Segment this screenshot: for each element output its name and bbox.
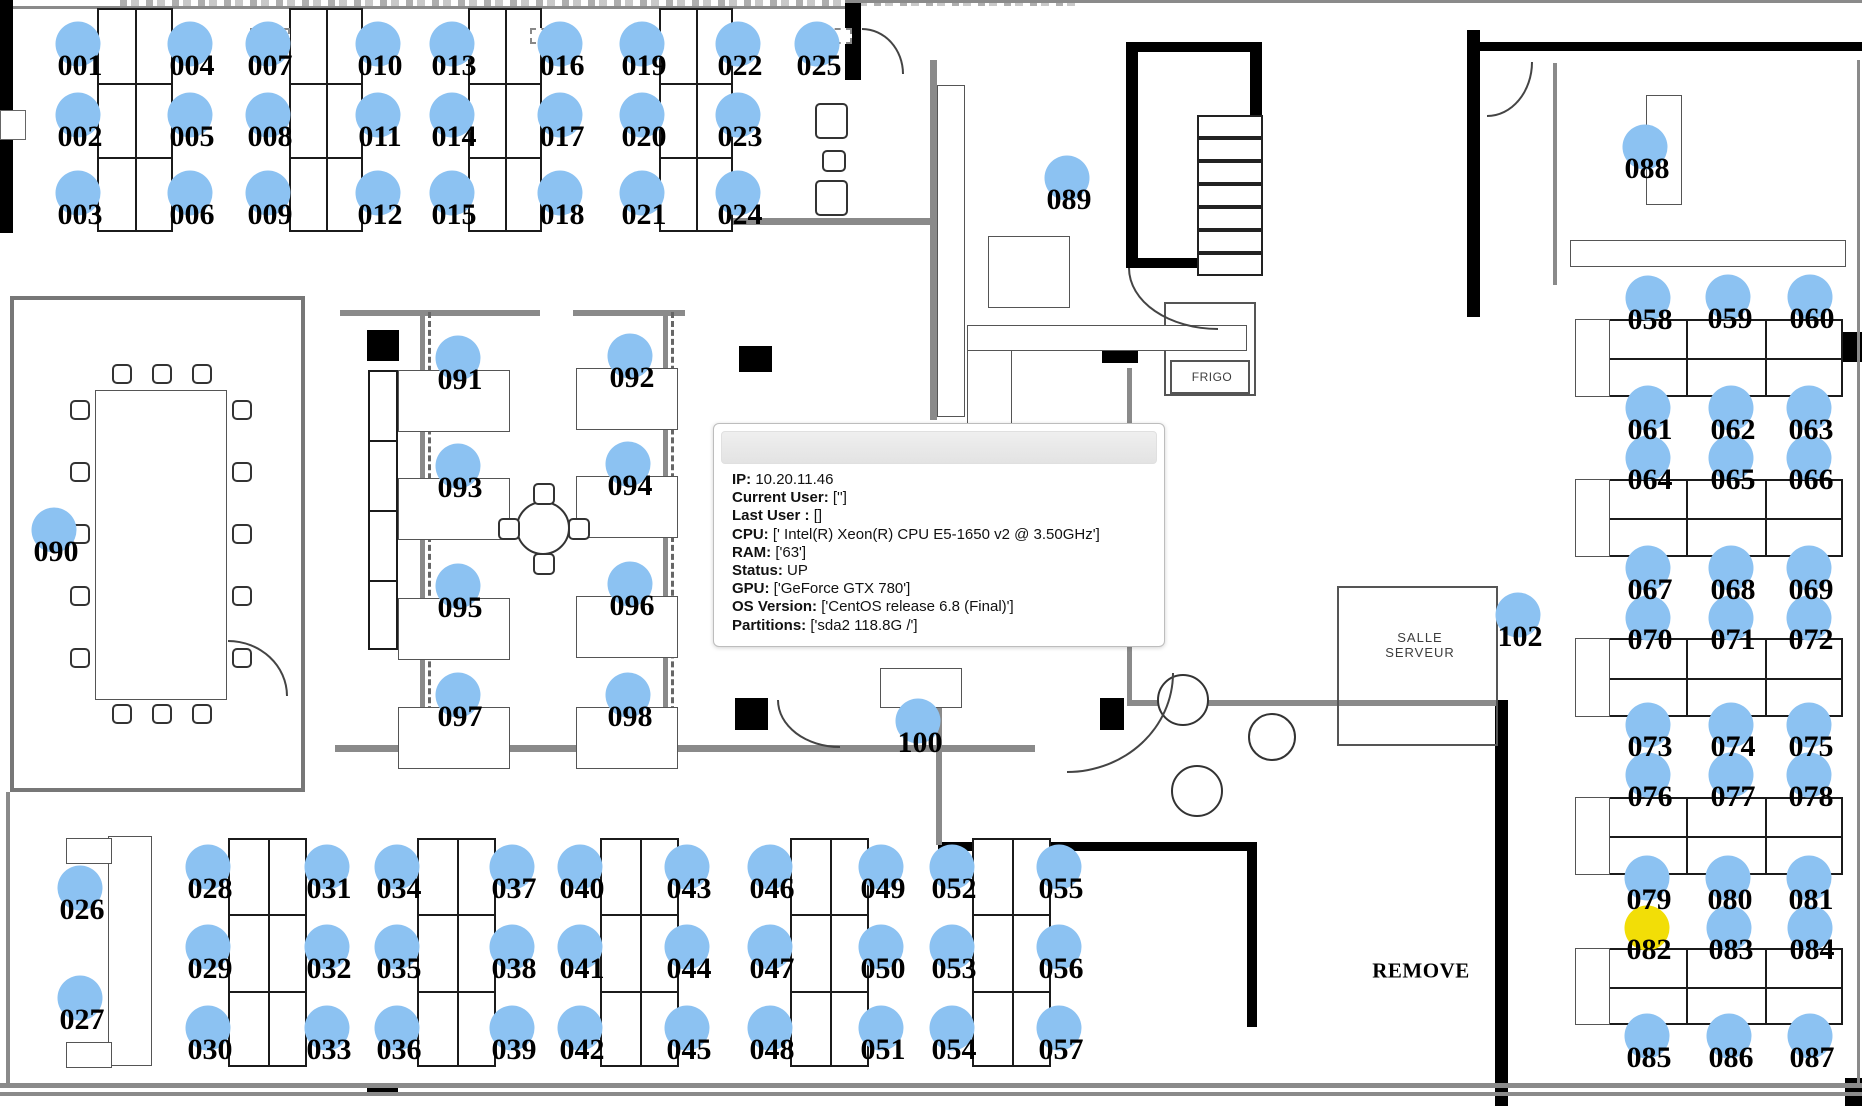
tooltip-field-value: [''] [833, 489, 847, 506]
seat-number: 080 [1708, 883, 1753, 917]
seat-number: 025 [797, 49, 842, 83]
wall [1553, 63, 1557, 285]
tooltip-field-value: ['CentOS release 6.8 (Final)'] [821, 598, 1013, 615]
shelf-row [1197, 253, 1263, 276]
seat-number: 066 [1789, 463, 1834, 497]
shelf-row [1197, 230, 1263, 253]
desk-divider [659, 157, 733, 159]
desk-divider [368, 510, 398, 512]
seat-number: 011 [358, 120, 401, 154]
seat-number: 098 [608, 700, 653, 734]
desk-divider [368, 440, 398, 442]
seat-number: 031 [307, 872, 352, 906]
shelf-row [1197, 161, 1263, 184]
seat-number: 019 [622, 49, 667, 83]
wall [845, 0, 1862, 3]
desk-divider [972, 914, 1051, 916]
seat-number: 015 [432, 198, 477, 232]
desk-divider [640, 838, 642, 1067]
seat-number: 097 [438, 700, 483, 734]
door-arc [1067, 673, 1174, 773]
desk-divider [600, 914, 679, 916]
chair [192, 704, 212, 724]
desk-divider [1608, 518, 1843, 520]
seat-number: 047 [750, 952, 795, 986]
seat-number: 070 [1628, 623, 1673, 657]
round-table [516, 501, 570, 555]
door-arc [862, 28, 904, 74]
desk [66, 838, 112, 864]
seat-number: 009 [248, 198, 293, 232]
remove-label: REMOVE [1372, 959, 1470, 984]
tooltip-field-partitions-: Partitions: ['sda2 118.8G /'] [732, 617, 1154, 635]
seat-number: 029 [188, 952, 233, 986]
seat-number: 063 [1789, 413, 1834, 447]
wall [6, 792, 10, 1083]
seat-number: 041 [560, 952, 605, 986]
seat-number: 050 [861, 952, 906, 986]
seat-number: 081 [1789, 883, 1834, 917]
desk-divider [268, 838, 270, 1067]
seat-number: 012 [358, 198, 403, 232]
seat-number: 027 [60, 1003, 105, 1037]
seat-number: 042 [560, 1033, 605, 1067]
desk [1570, 240, 1846, 267]
desk-divider [505, 8, 507, 232]
tooltip-field-os-version-: OS Version: ['CentOS release 6.8 (Final)… [732, 598, 1154, 616]
wall [1247, 842, 1257, 1027]
desk-divider [468, 83, 542, 85]
desk-divider [790, 914, 869, 916]
desk [66, 1042, 112, 1068]
wall [0, 1092, 1862, 1096]
seat-number: 052 [932, 872, 977, 906]
tooltip-field-label: OS Version: [732, 598, 817, 615]
desk-divider [1012, 838, 1014, 1067]
desk-divider [228, 991, 307, 993]
seat-number: 071 [1711, 623, 1756, 657]
desk [937, 85, 965, 417]
tooltip-titlebar [721, 431, 1157, 464]
seat-number: 010 [358, 49, 403, 83]
seat-number: 020 [622, 120, 667, 154]
wall [739, 346, 772, 372]
seat-number: 034 [377, 872, 422, 906]
tooltip-field-value: ['sda2 118.8G /'] [810, 617, 917, 634]
desk-divider [830, 838, 832, 1067]
seat-number: 072 [1789, 623, 1834, 657]
tooltip-field-label: GPU: [732, 580, 770, 597]
seat-number: 055 [1039, 872, 1084, 906]
seat-number: 089 [1047, 183, 1092, 217]
desk-divider [289, 83, 363, 85]
chair [232, 462, 252, 482]
shelf-row [1197, 184, 1263, 207]
chair [232, 586, 252, 606]
tooltip-field-label: CPU: [732, 526, 769, 543]
seat-number: 057 [1039, 1033, 1084, 1067]
chair [533, 553, 555, 575]
seat-number: 003 [58, 198, 103, 232]
desk [1575, 319, 1610, 397]
desk-divider [659, 83, 733, 85]
wall [1467, 30, 1480, 317]
chair [822, 150, 846, 172]
desk-divider [1608, 678, 1843, 680]
desk [1575, 797, 1610, 875]
wall [930, 60, 937, 420]
chair [70, 586, 90, 606]
seat-number: 067 [1628, 573, 1673, 607]
seat-number: 008 [248, 120, 293, 154]
seat-number: 039 [492, 1033, 537, 1067]
seat-number: 094 [608, 469, 653, 503]
tooltip-field-current-user-: Current User: [''] [732, 489, 1154, 507]
tooltip-field-ram-: RAM: ['63'] [732, 544, 1154, 562]
desk-divider [368, 580, 398, 582]
seat-number: 062 [1711, 413, 1756, 447]
seat-number: 083 [1709, 933, 1754, 967]
desk [95, 390, 227, 700]
desk-divider [457, 838, 459, 1067]
tooltip-field-label: Last User : [732, 507, 810, 524]
tooltip-field-status-: Status: UP [732, 562, 1154, 580]
tooltip-field-cpu-: CPU: [' Intel(R) Xeon(R) CPU E5-1650 v2 … [732, 526, 1154, 544]
seat-number: 100 [898, 726, 943, 760]
chair [112, 364, 132, 384]
desk-divider [326, 8, 328, 232]
seat-number: 002 [58, 120, 103, 154]
seat-number: 077 [1711, 780, 1756, 814]
chair [112, 704, 132, 724]
seat-number: 043 [667, 872, 712, 906]
chair [192, 364, 212, 384]
desk-divider [1608, 836, 1843, 838]
seat-number: 065 [1711, 463, 1756, 497]
seat-number: 005 [170, 120, 215, 154]
tooltip-field-value: [] [814, 507, 822, 524]
desk-divider [97, 157, 173, 159]
chair [70, 400, 90, 420]
desk-divider [600, 991, 679, 993]
seat-number: 024 [718, 198, 763, 232]
desk-divider [1608, 358, 1843, 360]
chair [152, 704, 172, 724]
seat-number: 064 [1628, 463, 1673, 497]
desk-divider [97, 83, 173, 85]
chair [70, 462, 90, 482]
shelf-row [1197, 115, 1263, 138]
seat-number: 051 [861, 1033, 906, 1067]
round-table [1171, 765, 1223, 817]
seat-number: 018 [540, 198, 585, 232]
chair [152, 364, 172, 384]
wall [1857, 60, 1860, 1085]
chair [815, 180, 848, 216]
desk-divider [135, 8, 137, 232]
seat-number: 048 [750, 1033, 795, 1067]
seat-number: 087 [1790, 1041, 1835, 1075]
wall [0, 138, 13, 233]
tooltip-field-label: Status: [732, 562, 783, 579]
desk-divider [1608, 987, 1843, 989]
tooltip-field-ip-: IP: 10.20.11.46 [732, 471, 1154, 489]
seat-number: 069 [1789, 573, 1834, 607]
shelf-row [1197, 138, 1263, 161]
chair [815, 103, 848, 139]
door-arc [777, 700, 840, 748]
desk [108, 836, 152, 1066]
desk-divider [417, 914, 496, 916]
wall [1126, 42, 1262, 52]
seat-number: 090 [34, 535, 79, 569]
seat-number: 073 [1628, 730, 1673, 764]
seat-number: 076 [1628, 780, 1673, 814]
desk-divider [696, 8, 698, 232]
seat-number: 032 [307, 952, 352, 986]
server-room [1337, 586, 1498, 746]
floorplan-canvas: 0010020030040050060070080090100110120130… [0, 0, 1862, 1106]
tooltip-field-value: ['63'] [775, 544, 806, 561]
seat-number: 049 [861, 872, 906, 906]
wall [0, 0, 13, 110]
seat-number: 038 [492, 952, 537, 986]
wall [0, 1083, 1862, 1088]
chair [70, 648, 90, 668]
chair [533, 483, 555, 505]
desk-divider [468, 157, 542, 159]
seat-number: 007 [248, 49, 293, 83]
wall [573, 310, 685, 316]
seat-number: 088 [1625, 152, 1670, 186]
seat-number: 045 [667, 1033, 712, 1067]
desk-divider [289, 157, 363, 159]
seat-number: 033 [307, 1033, 352, 1067]
seat-number: 054 [932, 1033, 977, 1067]
seat-number: 092 [610, 361, 655, 395]
chair [232, 400, 252, 420]
seat-number: 082 [1627, 933, 1672, 967]
wall [1480, 42, 1862, 51]
seat-number: 096 [610, 589, 655, 623]
wall [1495, 700, 1508, 1106]
tooltip-field-label: RAM: [732, 544, 771, 561]
seat-number: 086 [1709, 1041, 1754, 1075]
seat-number: 085 [1627, 1041, 1672, 1075]
seat-number: 079 [1627, 883, 1672, 917]
seat-number: 102 [1498, 620, 1543, 654]
seat-number: 084 [1790, 933, 1835, 967]
seat-number: 006 [170, 198, 215, 232]
tooltip-field-label: Current User: [732, 489, 829, 506]
seat-number: 053 [932, 952, 977, 986]
seat-number: 075 [1789, 730, 1834, 764]
seat-number: 078 [1789, 780, 1834, 814]
seat-number: 074 [1711, 730, 1756, 764]
seat-number: 013 [432, 49, 477, 83]
frigo-label: FRIGO [1192, 370, 1233, 384]
seat-number: 028 [188, 872, 233, 906]
seat-number: 040 [560, 872, 605, 906]
seat-number: 060 [1790, 302, 1835, 336]
seat-number: 016 [540, 49, 585, 83]
desk [1575, 948, 1610, 1025]
seat-number: 037 [492, 872, 537, 906]
seat-number: 001 [58, 49, 103, 83]
seat-number: 091 [438, 363, 483, 397]
seat-number: 036 [377, 1033, 422, 1067]
machine-info-tooltip: IP: 10.20.11.46Current User: ['']Last Us… [713, 423, 1165, 647]
seat-number: 046 [750, 872, 795, 906]
seat-number: 014 [432, 120, 477, 154]
wall [340, 310, 540, 316]
wall [735, 698, 768, 730]
tooltip-field-gpu-: GPU: ['GeForce GTX 780'] [732, 580, 1154, 598]
desk-divider [228, 914, 307, 916]
tooltip-field-value: [' Intel(R) Xeon(R) CPU E5-1650 v2 @ 3.5… [773, 526, 1100, 543]
chair [498, 518, 520, 540]
seat-number: 059 [1708, 302, 1753, 336]
seat-number: 093 [438, 471, 483, 505]
seat-number: 061 [1628, 413, 1673, 447]
wall-notch [0, 110, 26, 140]
seat-number: 017 [540, 120, 585, 154]
tooltip-field-label: Partitions: [732, 617, 806, 634]
chair [232, 524, 252, 544]
seat-number: 021 [622, 198, 667, 232]
door-arc [1487, 62, 1533, 117]
seat-number: 056 [1039, 952, 1084, 986]
seat-number: 022 [718, 49, 763, 83]
chair [568, 518, 590, 540]
tooltip-field-value: UP [787, 562, 808, 579]
seat-number: 068 [1711, 573, 1756, 607]
desk-divider [972, 991, 1051, 993]
wall [367, 330, 399, 361]
round-table [1248, 713, 1296, 761]
seat-number: 023 [718, 120, 763, 154]
wall [1126, 42, 1138, 268]
door-arc [1128, 268, 1218, 330]
seat-number: 058 [1628, 303, 1673, 337]
seat-number: 030 [188, 1033, 233, 1067]
desk [1575, 638, 1610, 717]
tooltip-fields: IP: 10.20.11.46Current User: ['']Last Us… [732, 471, 1154, 635]
desk-divider [790, 991, 869, 993]
shelf-row [1197, 207, 1263, 230]
desk-divider [417, 991, 496, 993]
tooltip-field-value: 10.20.11.46 [755, 471, 833, 488]
seat-number: 004 [170, 49, 215, 83]
seat-number: 026 [60, 893, 105, 927]
tooltip-field-label: IP: [732, 471, 751, 488]
tooltip-field-last-user--: Last User : [] [732, 507, 1154, 525]
tooltip-field-value: ['GeForce GTX 780'] [774, 580, 911, 597]
desk [1575, 479, 1610, 557]
seat-number: 044 [667, 952, 712, 986]
salle-serveur-label: SALLE SERVEUR [1385, 630, 1455, 660]
seat-number: 095 [438, 591, 483, 625]
seat-number: 035 [377, 952, 422, 986]
desk [988, 236, 1070, 308]
